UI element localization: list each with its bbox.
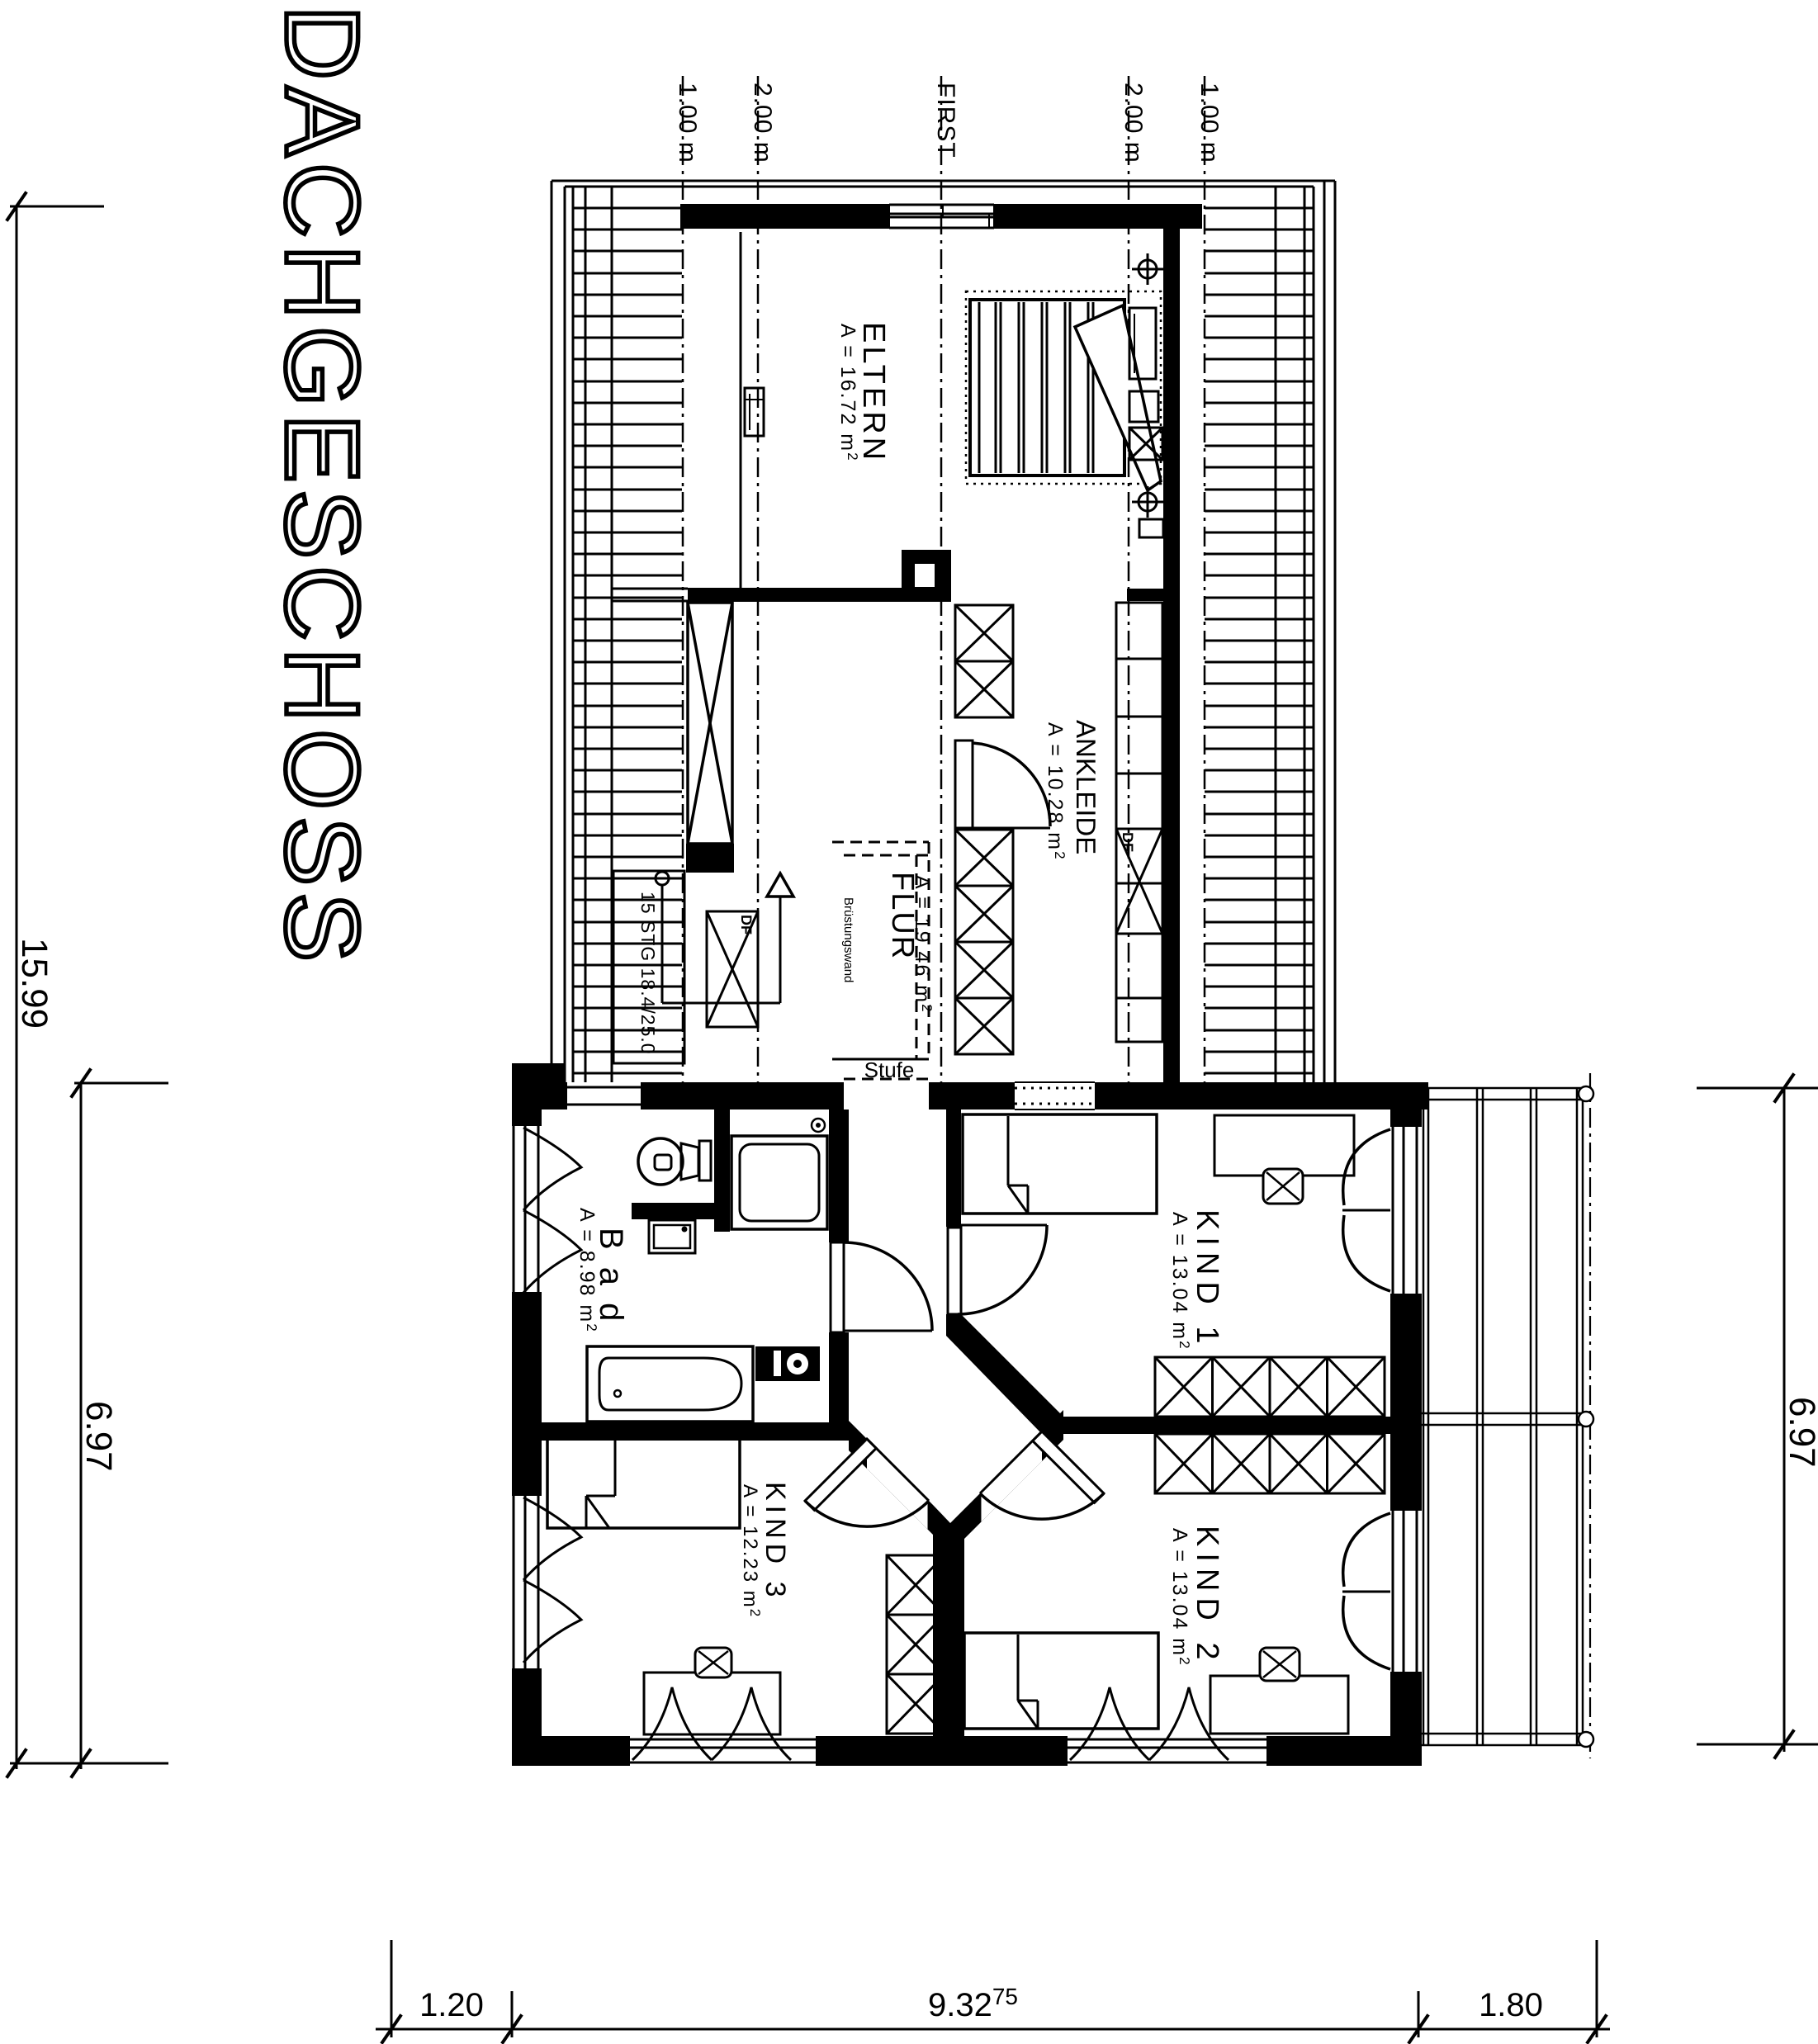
svg-text:A = 16.72 m2: A = 16.72 m2 [836,324,860,462]
svg-text:A = 12.23 m2: A = 12.23 m2 [739,1484,763,1618]
svg-text:A = 13.04 m2: A = 13.04 m2 [1168,1528,1192,1667]
svg-text:15 STG 18.4/25.0: 15 STG 18.4/25.0 [637,892,659,1055]
svg-text:A = 10.28 m2: A = 10.28 m2 [1044,722,1068,861]
svg-text:DF: DF [1120,832,1136,852]
svg-text:1.00 m: 1.00 m [1195,83,1223,163]
svg-text:DACHGESCHOSS: DACHGESCHOSS [264,5,381,968]
svg-text:A = 13.04 m2: A = 13.04 m2 [1168,1212,1192,1351]
svg-text:6.97: 6.97 [78,1401,119,1472]
svg-text:15.99: 15.99 [14,938,54,1029]
svg-text:A = 8.98 m2: A = 8.98 m2 [575,1208,599,1333]
svg-text:KIND 2: KIND 2 [1190,1526,1224,1666]
svg-text:2.00 m: 2.00 m [1120,83,1147,163]
svg-text:A = 19.46 m2: A = 19.46 m2 [911,875,935,1014]
svg-text:Brüstungswand: Brüstungswand [841,897,855,982]
svg-text:2.00 m: 2.00 m [749,83,776,163]
svg-text:KIND 3: KIND 3 [760,1482,791,1602]
svg-text:1.00 m: 1.00 m [674,83,701,163]
svg-text:ANKLEIDE: ANKLEIDE [1071,720,1101,854]
svg-text:ELTERN: ELTERN [856,322,891,463]
svg-text:6.97: 6.97 [1782,1397,1818,1468]
svg-text:KIND 1: KIND 1 [1190,1209,1224,1350]
svg-text:1.20: 1.20 [419,1987,484,2023]
svg-text:DF: DF [738,915,755,934]
svg-text:1.80: 1.80 [1479,1987,1543,2023]
svg-text:Stufe: Stufe [864,1057,915,1082]
svg-text:FIRST: FIRST [932,83,959,159]
